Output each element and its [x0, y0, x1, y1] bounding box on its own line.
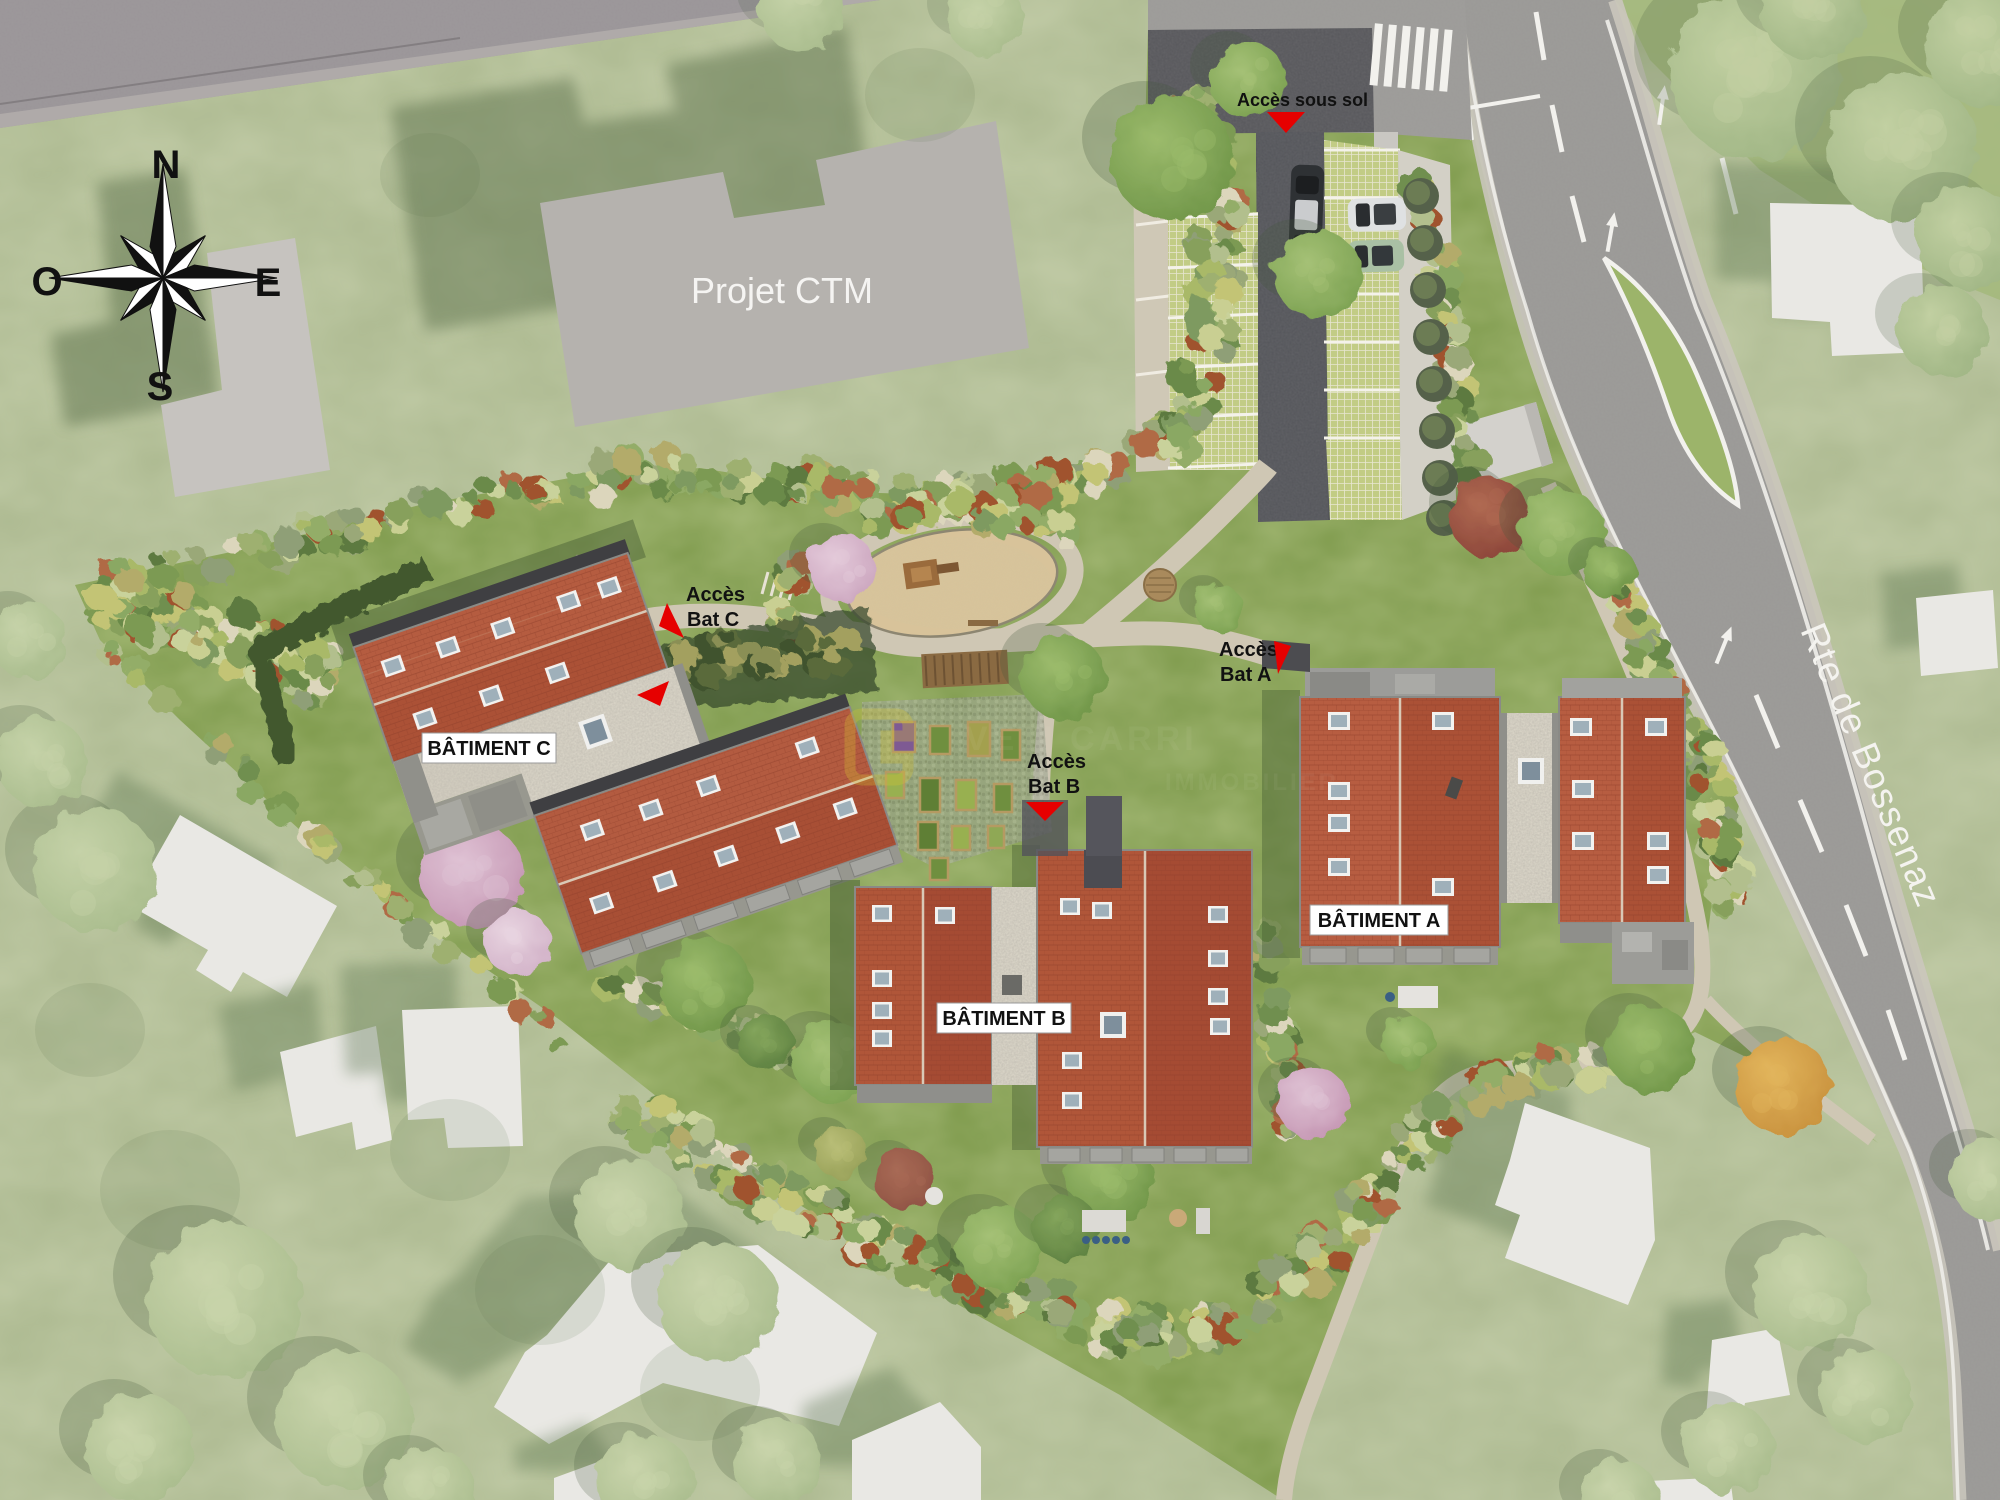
svg-text:Bat C: Bat C [687, 609, 739, 631]
svg-text:IMMOBILIER: IMMOBILIER [1165, 769, 1339, 796]
svg-text:O: O [31, 260, 62, 304]
svg-text:Projet CTM: Projet CTM [691, 270, 873, 311]
svg-text:Bat B: Bat B [1028, 776, 1080, 798]
svg-text:BÂTIMENT A: BÂTIMENT A [1318, 908, 1441, 932]
svg-text:N: N [152, 143, 181, 187]
svg-text:Accès: Accès [1027, 751, 1086, 773]
svg-text:BÂTIMENT B: BÂTIMENT B [942, 1006, 1065, 1030]
svg-text:BÂTIMENT C: BÂTIMENT C [427, 736, 550, 760]
svg-text:E: E [255, 261, 282, 305]
svg-text:Bat A: Bat A [1220, 664, 1271, 686]
svg-text:S: S [147, 365, 174, 409]
svg-text:Accès sous sol: Accès sous sol [1237, 90, 1368, 110]
svg-text:Accès: Accès [686, 584, 745, 606]
svg-text:Accès: Accès [1219, 639, 1278, 661]
